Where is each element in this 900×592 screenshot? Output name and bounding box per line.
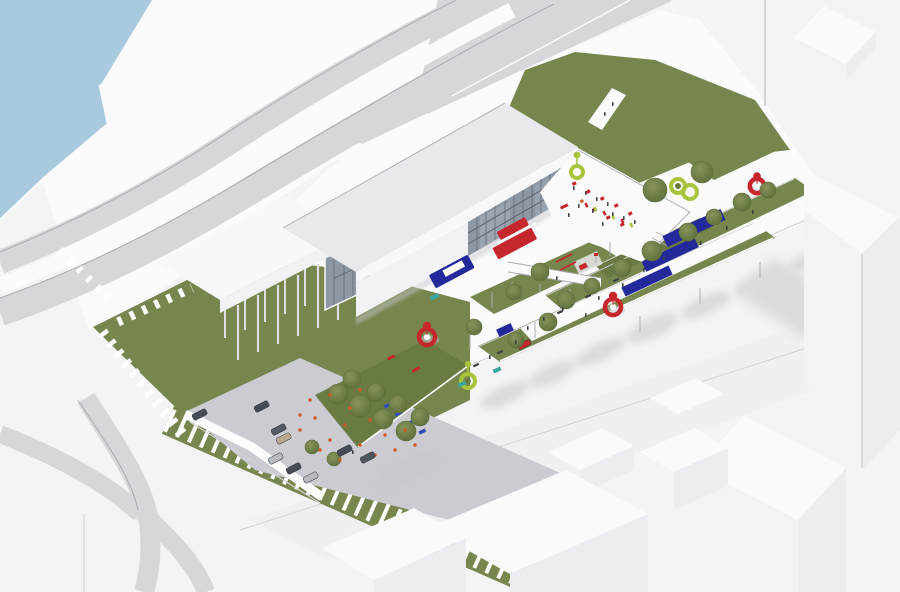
person-figure — [585, 313, 587, 317]
tree — [466, 319, 482, 335]
person-figure — [752, 210, 754, 214]
person-figure — [612, 102, 614, 106]
person-figure — [598, 296, 600, 300]
person-figure — [562, 307, 564, 311]
person-figure — [596, 197, 598, 201]
tree — [691, 161, 713, 183]
tree — [584, 278, 600, 294]
tree — [367, 383, 385, 401]
tree — [679, 223, 697, 241]
tree — [389, 395, 407, 413]
tree — [539, 313, 557, 331]
person-figure — [352, 450, 354, 454]
person-figure — [602, 222, 604, 226]
block-face — [862, 218, 900, 470]
tree — [506, 284, 522, 300]
tree — [642, 241, 662, 261]
tree — [643, 178, 667, 202]
tree — [760, 182, 776, 198]
person-figure — [612, 212, 614, 216]
person-figure — [700, 241, 702, 245]
lime-sculpture — [574, 152, 581, 159]
tree — [508, 332, 524, 348]
lime-sculpture — [465, 361, 471, 367]
person-figure — [527, 326, 529, 330]
tree — [305, 440, 319, 454]
tree — [349, 395, 371, 417]
person-figure — [634, 220, 636, 224]
person-figure — [568, 213, 570, 217]
tree — [706, 209, 722, 225]
person-figure — [607, 202, 609, 206]
person-figure — [592, 209, 594, 213]
render-canvas: Aerial architectural rendering — riversi… — [0, 0, 900, 592]
person-figure — [543, 317, 545, 321]
person-figure — [489, 355, 491, 359]
person-figure — [663, 256, 665, 260]
tree — [557, 291, 575, 309]
tree — [343, 370, 361, 388]
person-figure — [623, 216, 625, 220]
person-figure — [585, 191, 587, 195]
person-figure — [604, 112, 606, 116]
person-figure — [556, 276, 558, 280]
tree — [411, 408, 429, 426]
person-figure — [622, 283, 624, 287]
tree — [531, 263, 549, 281]
tree — [613, 259, 631, 277]
tree — [373, 409, 393, 429]
tree — [733, 193, 751, 211]
person-figure — [515, 340, 517, 344]
person-figure — [578, 204, 580, 208]
person-figure — [643, 268, 645, 272]
site-render: Aerial architectural rendering — riversi… — [0, 0, 900, 592]
person-figure — [726, 226, 728, 230]
person-figure — [573, 186, 575, 190]
